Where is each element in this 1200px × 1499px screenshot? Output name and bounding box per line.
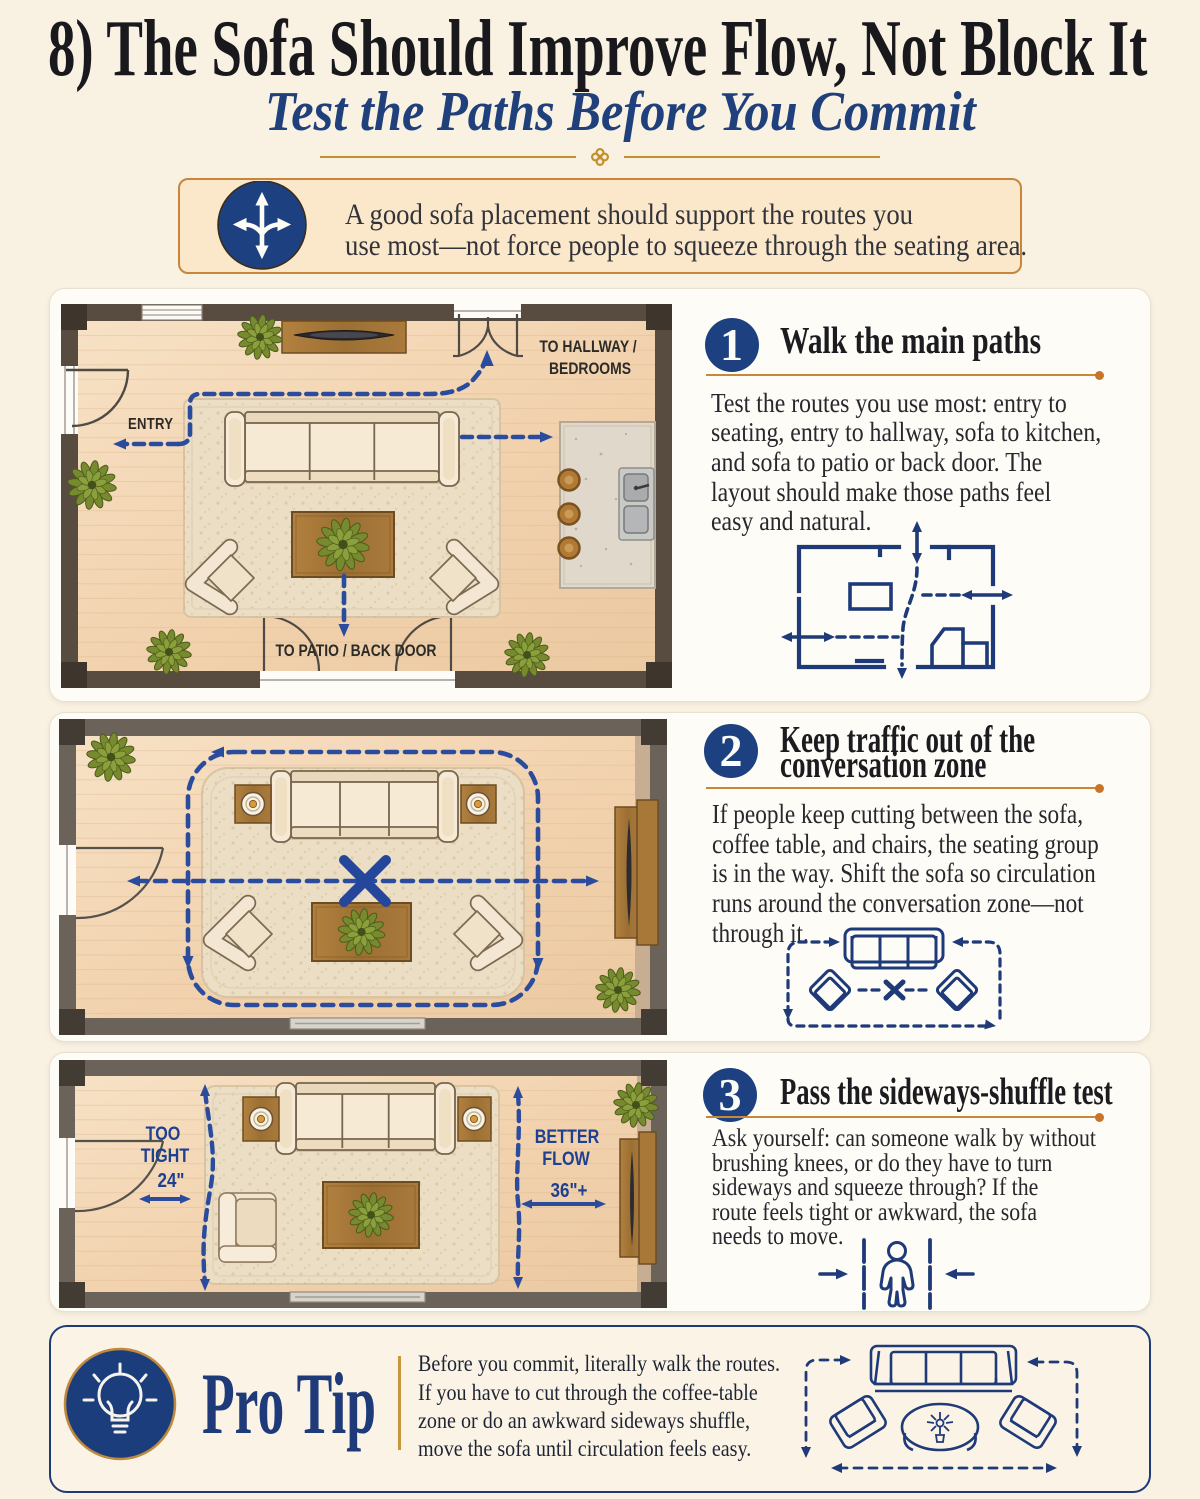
svg-text:TO HALLWAY /: TO HALLWAY / <box>539 338 637 357</box>
svg-text:36"+: 36"+ <box>551 1179 588 1202</box>
svg-text:TO PATIO / BACK DOOR: TO PATIO / BACK DOOR <box>276 642 437 661</box>
svg-text:TIGHT: TIGHT <box>141 1145 190 1167</box>
svg-text:BETTER: BETTER <box>535 1126 600 1148</box>
svg-text:ENTRY: ENTRY <box>128 416 173 433</box>
svg-text:24": 24" <box>158 1169 185 1192</box>
svg-text:BEDROOMS: BEDROOMS <box>549 360 631 379</box>
svg-text:FLOW: FLOW <box>542 1148 590 1170</box>
svg-text:TOO: TOO <box>146 1123 181 1145</box>
